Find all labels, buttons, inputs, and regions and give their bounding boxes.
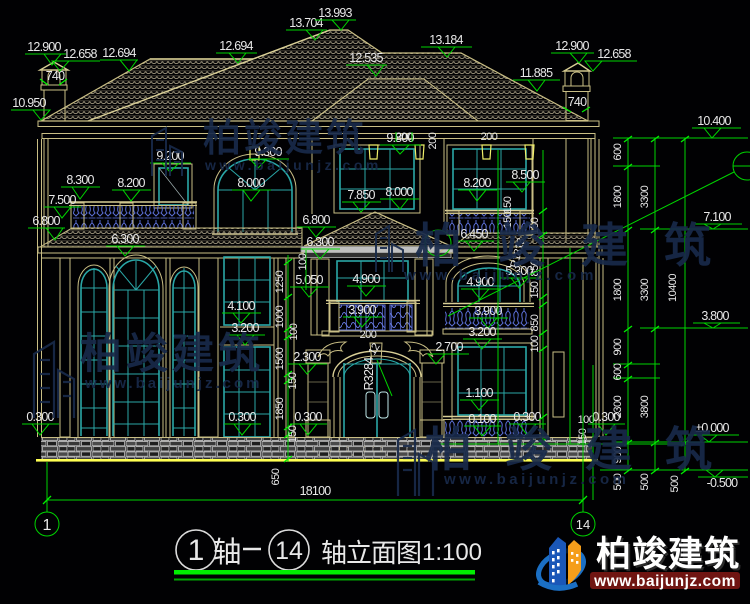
svg-text:10.950: 10.950 (12, 96, 46, 110)
svg-text:7.850: 7.850 (347, 188, 375, 202)
svg-text:100: 100 (288, 323, 300, 340)
svg-text:14: 14 (576, 517, 590, 532)
svg-text:3300: 3300 (639, 185, 651, 208)
svg-text:14: 14 (275, 537, 303, 565)
svg-text:R3284: R3284 (362, 357, 376, 391)
svg-text:轴立面图: 轴立面图 (321, 538, 421, 568)
svg-text:柏竣建筑: 柏竣建筑 (203, 118, 367, 160)
svg-text:2.300: 2.300 (293, 350, 321, 364)
svg-text:12.694: 12.694 (102, 46, 136, 60)
svg-text:650: 650 (270, 468, 282, 485)
svg-text:12.658: 12.658 (63, 47, 97, 61)
svg-text:200: 200 (481, 131, 498, 143)
svg-text:900: 900 (612, 338, 624, 355)
svg-text:600: 600 (612, 363, 624, 380)
svg-text:12.900: 12.900 (555, 39, 589, 53)
svg-text:1.100: 1.100 (465, 386, 493, 400)
svg-text:www.baijunjz.com: www.baijunjz.com (443, 471, 629, 488)
svg-text:1800: 1800 (612, 185, 624, 208)
svg-text:150: 150 (502, 196, 514, 213)
svg-text:740: 740 (46, 69, 65, 83)
svg-text:5.050: 5.050 (295, 273, 323, 287)
svg-text:100: 100 (297, 253, 309, 270)
svg-text:3.200: 3.200 (468, 325, 496, 339)
svg-text:200: 200 (360, 329, 377, 341)
svg-text:850: 850 (529, 314, 541, 331)
svg-text:10.400: 10.400 (697, 114, 731, 128)
svg-text:18100: 18100 (300, 484, 332, 498)
svg-text:1800: 1800 (612, 278, 624, 301)
svg-text:8.000: 8.000 (385, 185, 413, 199)
svg-text:12.535: 12.535 (349, 51, 383, 65)
svg-text:1: 1 (188, 534, 205, 567)
svg-text:柏竣建筑: 柏竣建筑 (80, 330, 264, 377)
svg-text:3.900: 3.900 (348, 303, 376, 317)
svg-text:www.baijunjz.com: www.baijunjz.com (593, 573, 736, 590)
svg-text:柏竣建筑: 柏竣建筑 (596, 534, 740, 574)
svg-text:200: 200 (396, 131, 413, 143)
svg-text:6.800: 6.800 (32, 214, 60, 228)
svg-text:www.baijunjz.com: www.baijunjz.com (84, 375, 262, 392)
svg-text:6.300: 6.300 (306, 235, 334, 249)
svg-text:0.300: 0.300 (294, 410, 322, 424)
svg-text:www.baijunjz.com: www.baijunjz.com (403, 267, 597, 284)
svg-text:7.500: 7.500 (48, 193, 76, 207)
svg-text:1850: 1850 (274, 397, 286, 420)
svg-text:500: 500 (669, 475, 681, 492)
svg-text:3800: 3800 (639, 395, 651, 418)
svg-text:6.300: 6.300 (111, 232, 139, 246)
svg-text:3.800: 3.800 (701, 309, 729, 323)
svg-text:4.100: 4.100 (227, 299, 255, 313)
svg-text:0.300: 0.300 (513, 410, 541, 424)
svg-text:12.658: 12.658 (597, 47, 631, 61)
svg-text:0.300: 0.300 (26, 410, 54, 424)
svg-text:740: 740 (568, 95, 587, 109)
svg-text:12.900: 12.900 (27, 40, 61, 54)
svg-text:13.993: 13.993 (318, 6, 352, 20)
svg-text:12.694: 12.694 (219, 39, 253, 53)
svg-text:1250: 1250 (274, 270, 286, 293)
svg-text:1500: 1500 (274, 347, 286, 370)
svg-text:8.500: 8.500 (511, 168, 539, 182)
svg-text:3300: 3300 (639, 278, 651, 301)
svg-text:-0.500: -0.500 (707, 476, 738, 490)
svg-text:柏竣建筑: 柏竣建筑 (415, 219, 747, 272)
svg-text:柏竣建筑: 柏竣建筑 (425, 423, 745, 476)
svg-text:6.800: 6.800 (302, 213, 330, 227)
svg-text:8.200: 8.200 (463, 176, 491, 190)
svg-text:600: 600 (612, 143, 624, 160)
svg-text:8.200: 8.200 (117, 176, 145, 190)
svg-text:0.300: 0.300 (228, 410, 256, 424)
svg-text:轴: 轴 (212, 536, 241, 569)
svg-text:11.885: 11.885 (520, 66, 553, 80)
svg-text:4.900: 4.900 (352, 272, 380, 286)
svg-text:2.700: 2.700 (435, 340, 463, 354)
svg-text:2300: 2300 (612, 395, 624, 418)
svg-text:8.000: 8.000 (237, 176, 265, 190)
svg-text:1:100: 1:100 (422, 539, 482, 566)
svg-text:150: 150 (287, 372, 299, 389)
svg-text:1: 1 (43, 517, 52, 534)
svg-text:13.184: 13.184 (429, 33, 463, 47)
svg-text:8.300: 8.300 (66, 173, 94, 187)
svg-text:200: 200 (427, 132, 439, 149)
svg-text:www.baijunjz.com: www.baijunjz.com (204, 157, 382, 173)
svg-text:1000: 1000 (274, 305, 286, 328)
svg-text:100: 100 (529, 335, 541, 352)
svg-text:150: 150 (287, 425, 299, 442)
svg-text:10400: 10400 (667, 274, 679, 302)
